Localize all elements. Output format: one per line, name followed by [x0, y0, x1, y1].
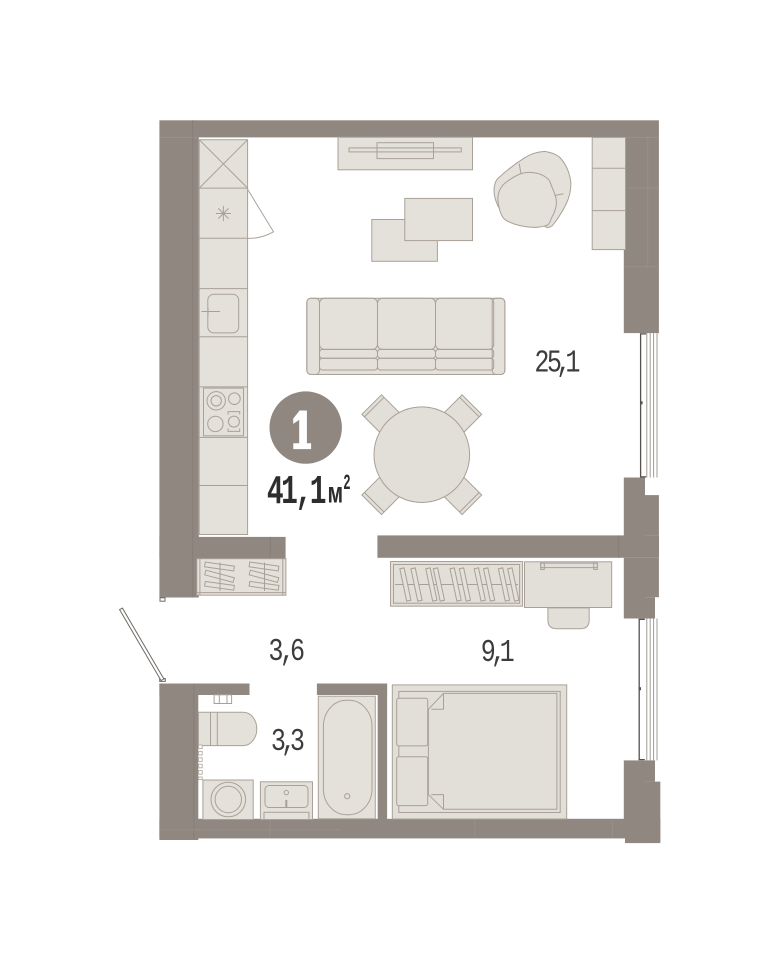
svg-text:3,6: 3,6 — [268, 634, 305, 670]
svg-text:25,1: 25,1 — [534, 345, 580, 381]
svg-text:9,1: 9,1 — [481, 634, 515, 670]
svg-text:м: м — [328, 479, 343, 513]
svg-text:2: 2 — [343, 472, 350, 497]
svg-text:41,1: 41,1 — [267, 469, 326, 516]
svg-text:3,3: 3,3 — [271, 723, 305, 759]
